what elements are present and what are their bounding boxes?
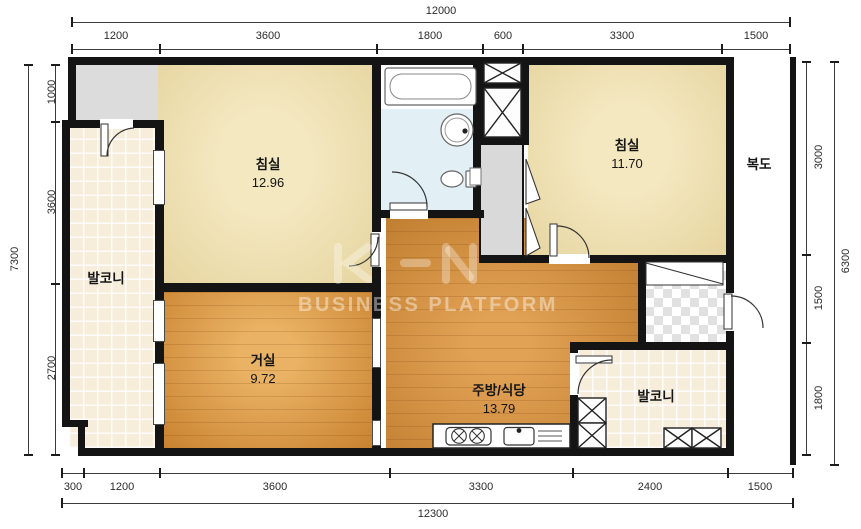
watermark-logo: [338, 247, 473, 280]
bedroom2-area: 11.70: [557, 155, 697, 173]
living-area: 9.72: [193, 370, 333, 388]
shaft-boxes: [484, 63, 521, 137]
shoe-cabinet: [646, 262, 723, 285]
bedroom1-name: 침실: [198, 156, 338, 174]
door-arc-graybox: [107, 128, 134, 156]
bedroom2-name: 침실: [557, 137, 697, 155]
bathtub: [385, 68, 476, 105]
door-panel-balcony2: [576, 356, 612, 363]
kitchen-counter: [433, 424, 570, 448]
plan-linework: [0, 0, 861, 529]
bedroom2-label: 침실 11.70: [557, 137, 697, 173]
door-panel-bathroom: [390, 203, 427, 210]
bedroom1-area: 12.96: [198, 174, 338, 192]
door-arc-bedroom2: [557, 226, 589, 258]
door-arc-entrance: [731, 296, 763, 328]
door-arc-bathroom: [392, 172, 427, 207]
closet-bifold-door: [526, 159, 540, 256]
floor-plan-canvas: 12000 1200 3600 1800 600 3300 1500 300 1…: [0, 0, 861, 529]
bedroom1-label: 침실 12.96: [198, 156, 338, 192]
watermark-text: BUSINESS PLATFORM: [288, 294, 568, 317]
living-name: 거실: [193, 352, 333, 370]
kitchen-area: 13.79: [429, 400, 569, 418]
washbasin: [441, 114, 473, 146]
balcony-right-label: 발코니: [596, 388, 716, 406]
living-label: 거실 9.72: [193, 352, 333, 388]
kitchen-label: 주방/식당 13.79: [429, 382, 569, 418]
door-panel-entrance: [724, 294, 732, 329]
balcony-left-label: 발코니: [46, 270, 166, 288]
corridor-label: 복도: [729, 156, 789, 174]
door-panel-bedroom2: [550, 224, 557, 256]
bathroom-niche: [470, 168, 481, 185]
kitchen-name: 주방/식당: [429, 382, 569, 400]
